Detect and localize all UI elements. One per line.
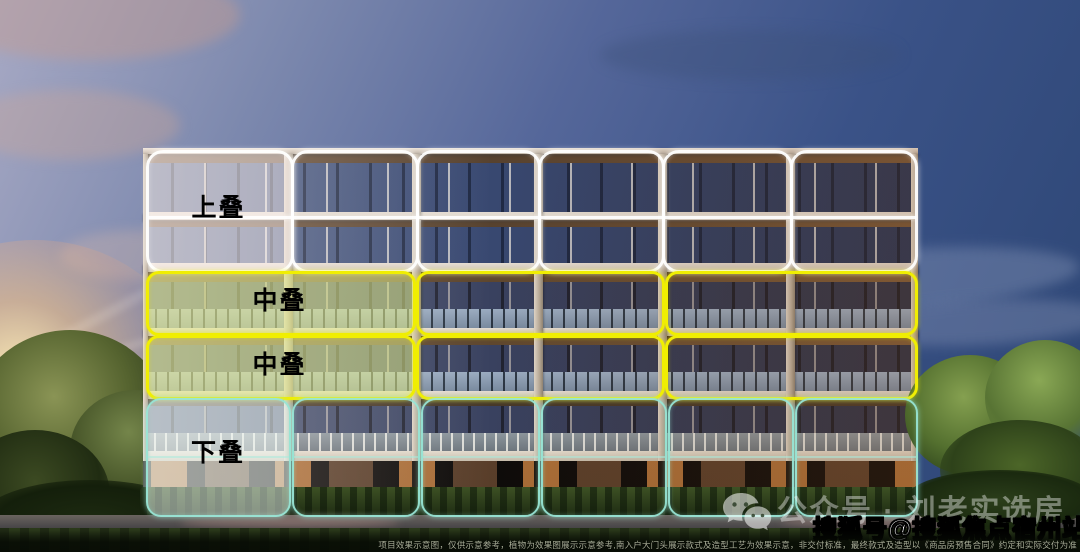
floor-divider-line	[423, 456, 538, 458]
lower-unit-outline	[421, 398, 540, 517]
floor-divider-line	[293, 216, 417, 219]
upper-unit-outline	[291, 150, 419, 273]
lower-unit-outline	[292, 398, 420, 517]
middle-stack-label-2: 中叠	[146, 353, 413, 378]
middle-stack-label-1: 中叠	[146, 289, 413, 314]
floor-divider-line	[294, 456, 418, 458]
disclaimer-text: 项目效果示意图，仅供示意参考，植物为效果图展示示意参考,南入户大门头展示款式及造…	[378, 539, 1077, 551]
floor-divider-line	[418, 216, 539, 219]
floor-divider-line	[540, 216, 663, 219]
upper-unit-outline	[416, 150, 541, 273]
middle-unit-outline	[665, 335, 918, 400]
upper-stack-label: 上叠	[146, 196, 291, 221]
middle-unit-outline	[416, 335, 665, 400]
floor-divider-line	[543, 456, 665, 458]
upper-unit-outline	[662, 150, 793, 273]
marketing-render-image: 上叠 中叠 中叠 下叠 公众号 · 刘老实选房 搜狐号@搜狐焦点宿州站 项目效果…	[0, 0, 1080, 552]
upper-unit-outline	[790, 150, 918, 273]
upper-unit-outline	[538, 150, 665, 273]
floor-divider-line	[792, 216, 916, 219]
lower-stack-label: 下叠	[146, 441, 290, 466]
floor-divider-line	[664, 216, 791, 219]
lower-unit-outline	[541, 398, 667, 517]
floor-divider-line	[797, 456, 916, 458]
floor-divider-line	[670, 456, 792, 458]
middle-unit-outline	[665, 271, 918, 336]
middle-unit-outline	[416, 271, 665, 336]
road-reflection	[180, 516, 400, 528]
